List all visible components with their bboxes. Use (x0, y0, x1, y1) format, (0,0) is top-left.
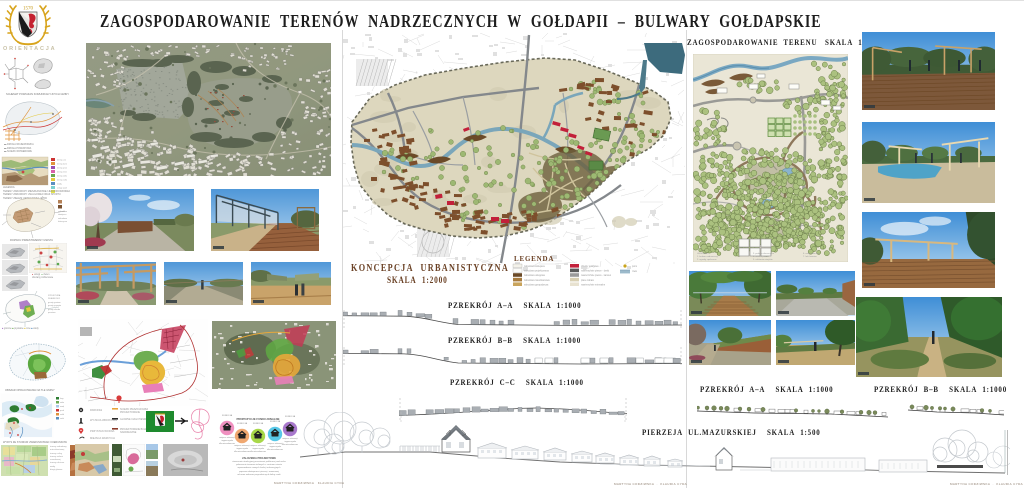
svg-text:zabudowa: zabudowa (58, 218, 67, 220)
svg-text:rzeki: rzeki (60, 418, 64, 420)
svg-text:wody: wody (60, 406, 64, 408)
svg-text:4. sciezki piesze: 4. sciezki piesze (753, 256, 770, 258)
svg-text:STRUKTURA: STRUKTURA (48, 294, 61, 297)
svg-text:1. bulwar nadrzeczny: 1. bulwar nadrzeczny (697, 255, 719, 258)
svg-text:NADRZECZNE: NADRZECZNE (120, 431, 137, 434)
svg-text:PARKINGI: PARKINGI (90, 408, 102, 412)
svg-text:1570: 1570 (23, 7, 34, 12)
svg-text:zielen: zielen (60, 402, 64, 404)
svg-text:PRZYSTAN WODNA: PRZYSTAN WODNA (90, 429, 115, 433)
svg-text:pomniki: pomniki (632, 266, 637, 268)
svg-text:5. szklarnie miejskie: 5. szklarnie miejskie (753, 258, 773, 261)
svg-text:punkty: punkty (60, 409, 64, 412)
svg-text:nawierzchnie piesze - kamien: nawierzchnie piesze - kamien (581, 274, 612, 277)
svg-text:tereny usl.: tereny usl. (57, 159, 67, 162)
svg-text:place zabaw: place zabaw (581, 280, 594, 282)
svg-text:zabudowa mieszkaniowa: zabudowa mieszkaniowa (524, 280, 550, 282)
svg-text:tereny kom.: tereny kom. (57, 163, 67, 166)
svg-text:7. laki kwietne: 7. laki kwietne (803, 255, 818, 258)
svg-text:zabudowa gospodarcza: zabudowa gospodarcza (524, 283, 549, 286)
svg-text:historyczna: historyczna (58, 220, 67, 223)
svg-text:tereny rolne: tereny rolne (57, 179, 67, 182)
svg-text:zabudowa istniejaca: zabudowa istniejaca (524, 265, 545, 268)
svg-text:istniejaca: istniejaca (58, 213, 67, 216)
svg-text:3. polana rekreacyjna: 3. polana rekreacyjna (753, 252, 775, 255)
svg-text:nawierzchnie piesze - deski: nawierzchnie piesze - deski (581, 270, 610, 273)
svg-text:tereny zielone: tereny zielone (57, 175, 67, 178)
svg-text:panstwa: panstwa (48, 311, 56, 314)
svg-text:tereny przem.: tereny przem. (57, 167, 67, 170)
svg-text:2. ogrody spoleczne: 2. ogrody spoleczne (697, 258, 717, 261)
svg-text:zabudowa: zabudowa (58, 211, 67, 213)
svg-text:LEGENDA: LEGENDA (697, 252, 708, 255)
svg-text:obiekty uslugowe: obiekty uslugowe (581, 265, 599, 268)
svg-text:grunty prywatne: grunty prywatne (48, 304, 61, 307)
svg-text:zabudowa uslugowa: zabudowa uslugowa (524, 275, 546, 277)
svg-text:WLASNOSCI: WLASNOSCI (48, 297, 60, 300)
svg-text:szlaki: szlaki (60, 414, 64, 416)
svg-text:PROJEKTOWANE: PROJEKTOWANE (120, 411, 140, 414)
svg-text:grunty skarbu: grunty skarbu (48, 308, 60, 311)
svg-text:lasy: lasy (60, 398, 64, 400)
svg-text:nawierzchnie mineralne: nawierzchnie mineralne (581, 283, 606, 286)
svg-text:grunty gminne: grunty gminne (48, 301, 61, 304)
svg-text:6. sady owocowe: 6. sady owocowe (803, 253, 821, 255)
svg-text:rzeka: rzeka (632, 270, 637, 273)
svg-text:tereny mieszk.: tereny mieszk. (57, 171, 67, 174)
svg-text:zabudowa projektowana: zabudowa projektowana (524, 270, 549, 273)
svg-text:GLOWNE CIAGI PIESZE: GLOWNE CIAGI PIESZE (120, 418, 147, 421)
